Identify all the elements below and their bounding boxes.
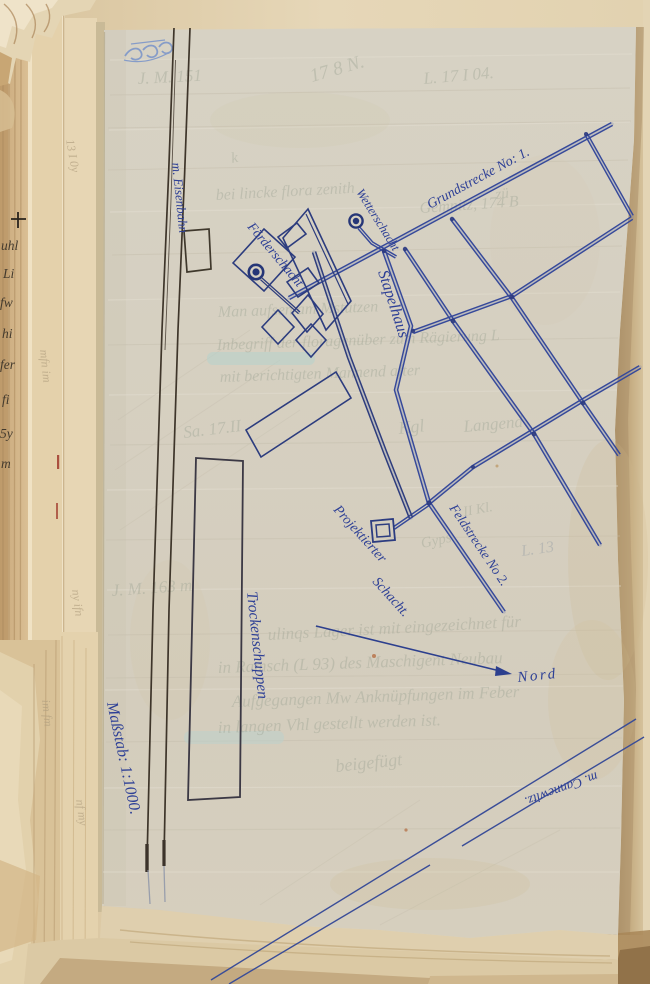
svg-text:hi: hi	[2, 326, 13, 341]
svg-text:fer: fer	[0, 357, 16, 372]
svg-text:im fm: im fm	[39, 699, 56, 728]
svg-text:Li: Li	[2, 266, 15, 281]
svg-text:fw: fw	[0, 295, 13, 310]
svg-text:J. M. 151: J. M. 151	[137, 66, 202, 88]
svg-text:5y: 5y	[0, 426, 13, 441]
svg-text:m: m	[1, 456, 11, 471]
svg-text:fi: fi	[2, 392, 10, 407]
svg-text:uhl: uhl	[1, 238, 19, 253]
